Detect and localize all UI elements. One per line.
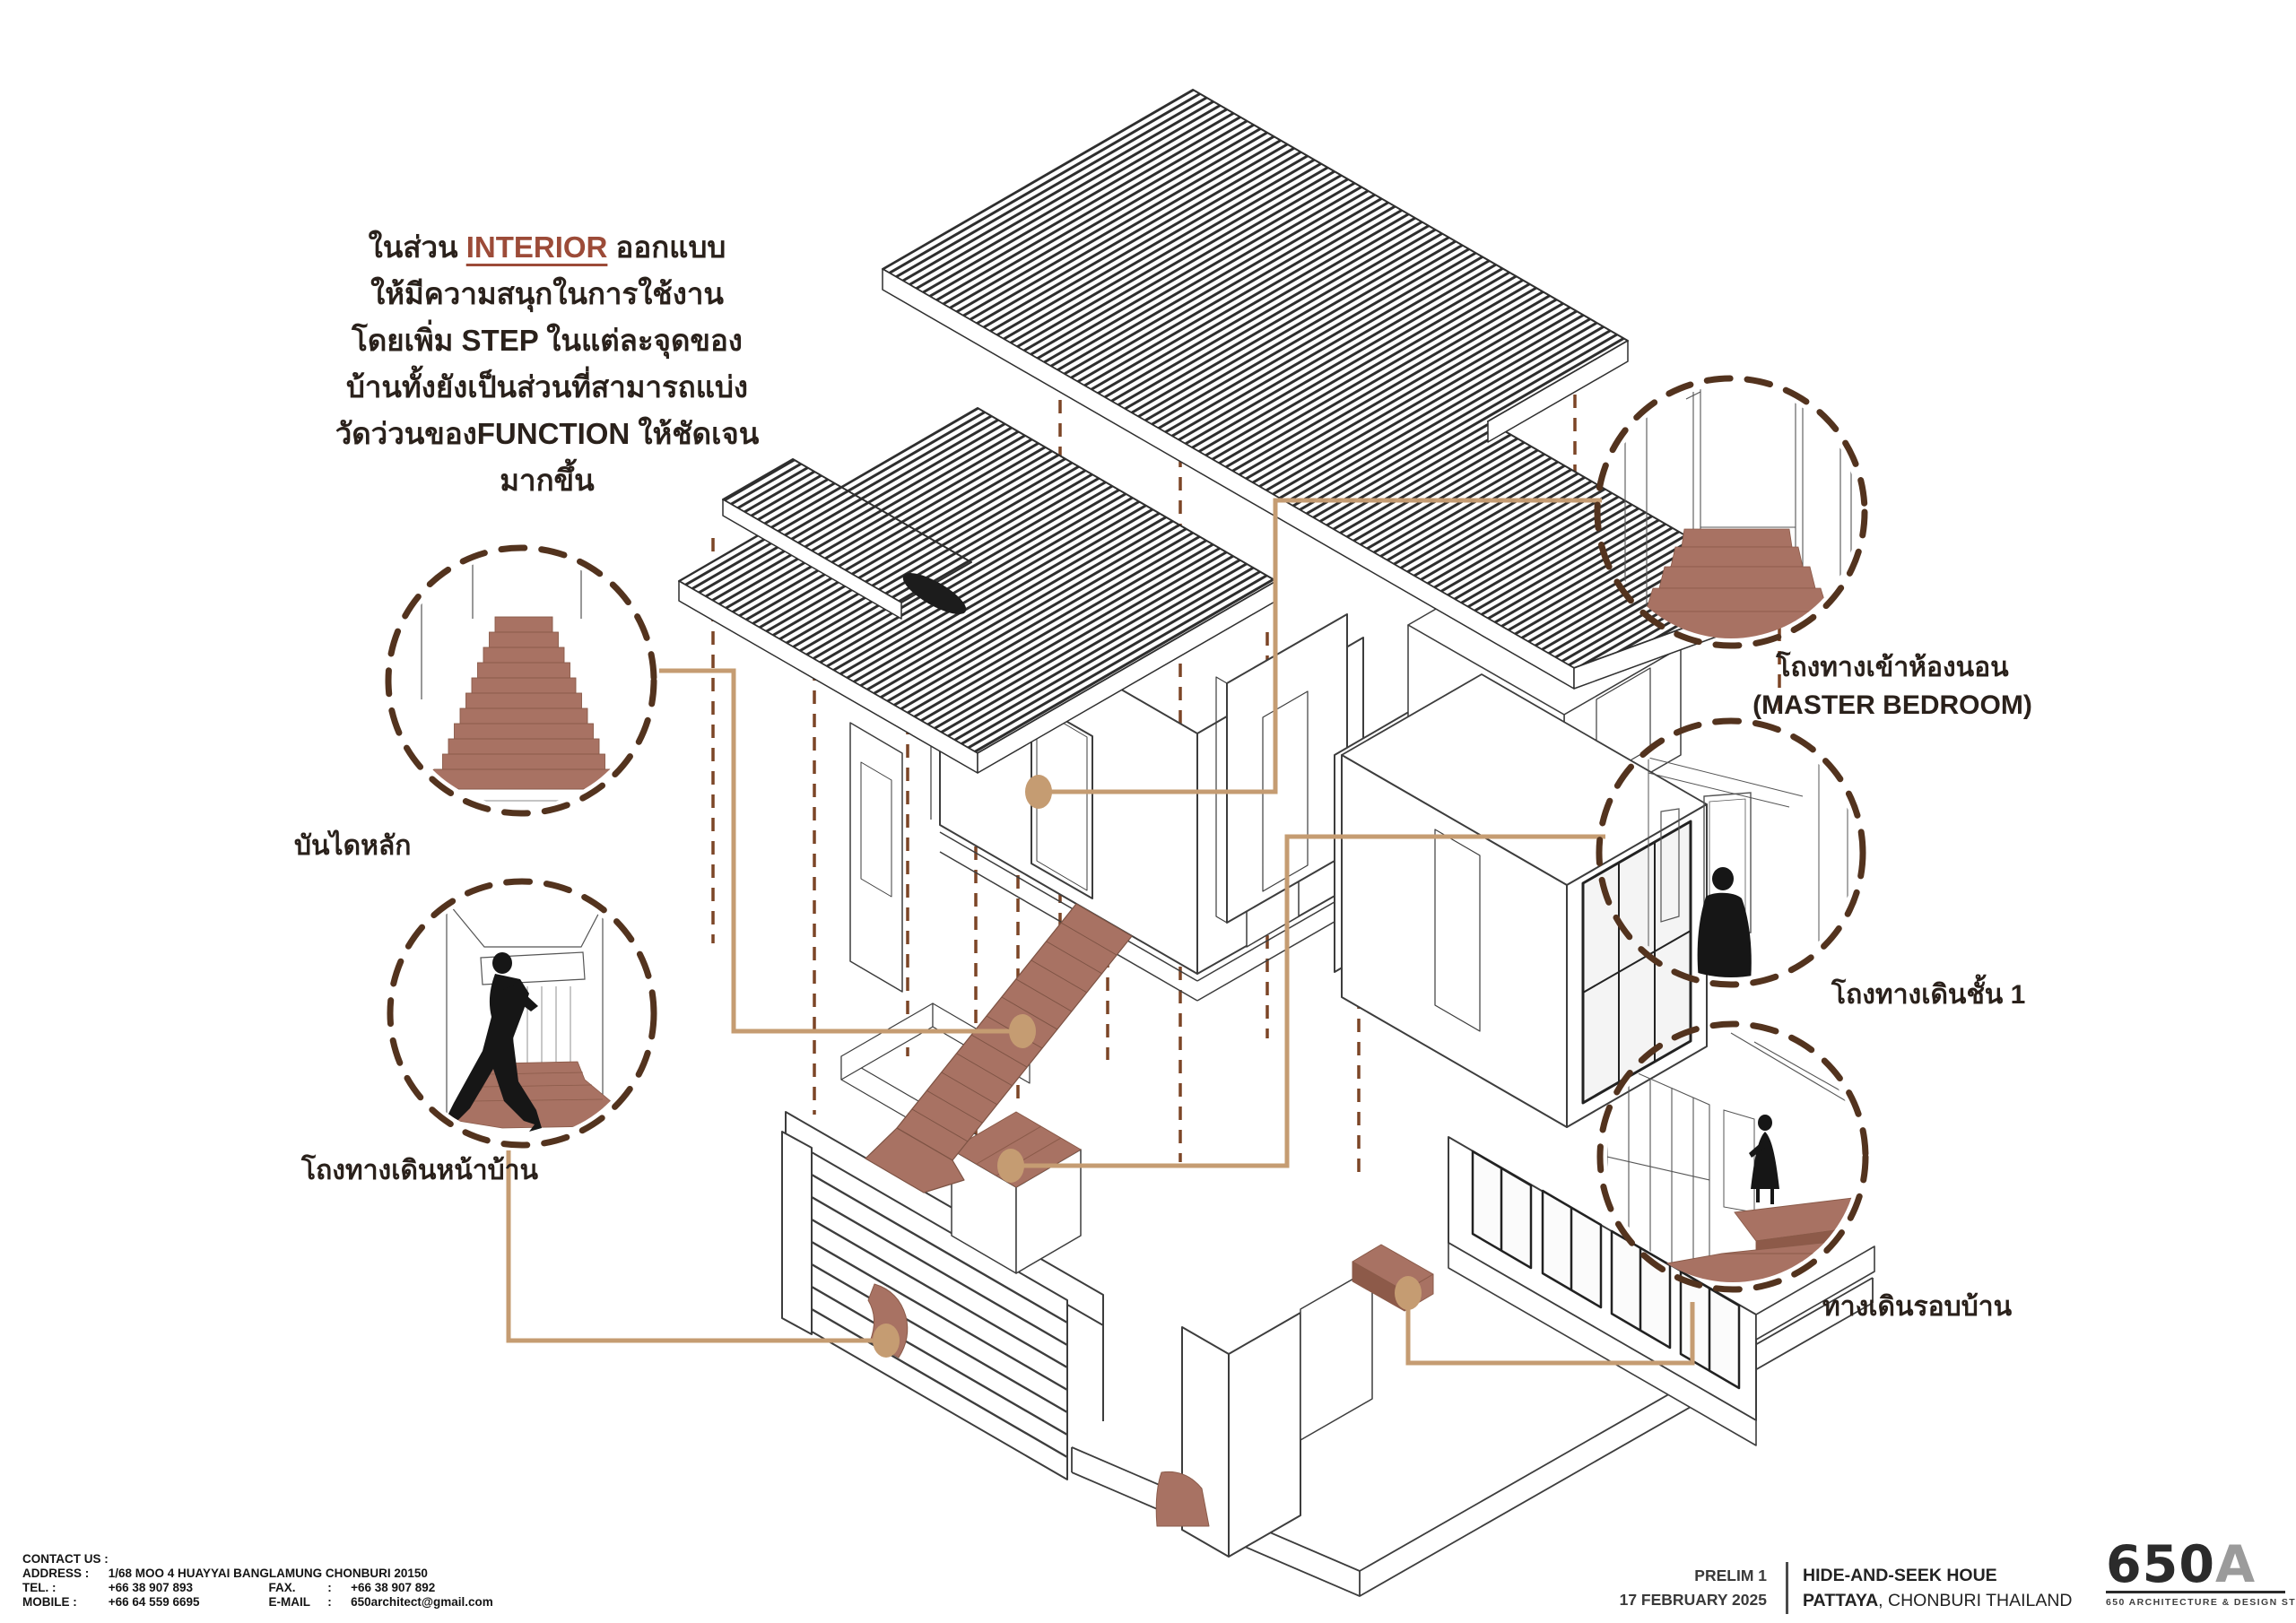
contact-tel-row: TEL. : +66 38 907 893 FAX. : +66 38 907 … [22,1581,493,1595]
label-master-bedroom-line2: (MASTER BEDROOM) [1740,687,2045,725]
callout-dot-front-hallway [873,1324,900,1358]
description-line-2: ให้มีความสนุกในการใช้งาน [287,271,807,317]
design-description: ในส่วน INTERIOR ออกแบบ ให้มีความสนุกในกา… [287,224,807,504]
project-city: PATTAYA [1803,1591,1878,1610]
tel-value: +66 38 907 893 [109,1581,265,1595]
address-value: 1/68 MOO 4 HUAYYAI BANGLAMUNG CHONBURI 2… [109,1567,428,1581]
label-front-hallway: โถงทางเดินหน้าบ้าน [301,1150,538,1192]
label-main-stair: บันไดหลัก [294,825,411,867]
mobile-value: +66 64 559 6695 [109,1595,265,1610]
description-line-4: บ้านทั้งยังเป็นส่วนที่สามารถแบ่ง [287,364,807,411]
stair-steps [405,617,642,789]
tel-label: TEL. : [22,1581,105,1595]
studio-logo: 650A 650 ARCHITECTURE & DESIGN STUDIO [2106,1539,2291,1608]
project-location: PATTAYA, CHONBURI THAILAND [1803,1588,2073,1613]
description-line-1: ในส่วน INTERIOR ออกแบบ [287,224,807,271]
titleblock-phase-column: PRELIM 1 17 FEBRUARY 2025 [1552,1564,1767,1612]
callout-dot-first-floor-hallway [997,1149,1024,1183]
presentation-board: ในส่วน INTERIOR ออกแบบ ให้มีความสนุกในกา… [0,0,2296,1623]
date-label: 17 FEBRUARY 2025 [1552,1588,1767,1612]
floating-wall-panel [850,723,902,992]
phase-label: PRELIM 1 [1552,1564,1767,1588]
email-separator: : [327,1595,347,1610]
titleblock-divider [1786,1562,1788,1614]
description-line-6: มากขึ้น [287,457,807,504]
fax-value: +66 38 907 892 [351,1581,435,1595]
callout-dot-main-stair [1009,1014,1036,1048]
address-label: ADDRESS : [22,1567,105,1581]
project-name: HIDE-AND-SEEK HOUE [1803,1563,2073,1588]
logo-mark-650: 650 [2106,1535,2215,1594]
label-master-bedroom-line1: โถงทางเข้าห้องนอน [1740,649,2045,687]
callout-circle-main-stair [388,548,654,813]
contact-block: CONTACT US : ADDRESS : 1/68 MOO 4 HUAYYA… [22,1552,493,1610]
fax-separator: : [327,1581,347,1595]
description-line-5: วัดว่วนของFUNCTION ให้ชัดเจน [287,411,807,457]
description-line-3: โดยเพิ่ม STEP ในแต่ละจุดของ [287,317,807,364]
fax-label: FAX. [269,1581,325,1595]
contact-address-row: ADDRESS : 1/68 MOO 4 HUAYYAI BANGLAMUNG … [22,1567,493,1581]
logo-mark: 650A [2106,1539,2291,1591]
logo-tagline: 650 ARCHITECTURE & DESIGN STUDIO [2106,1597,2291,1608]
callout-dot-walkway [1395,1276,1422,1310]
label-walkway-around-house: ทางเดินรอบบ้าน [1822,1286,2012,1328]
mobile-label: MOBILE : [22,1595,105,1610]
interior-highlight: INTERIOR [466,230,608,264]
dress-person-icon [1749,1115,1779,1204]
roof [679,90,1783,773]
callout-dot-master-bedroom [1025,775,1052,809]
contact-mobile-row: MOBILE : +66 64 559 6695 E-MAIL : 650arc… [22,1595,493,1610]
label-master-bedroom-entry: โถงทางเข้าห้องนอน (MASTER BEDROOM) [1740,649,2045,725]
email-value: 650architect@gmail.com [351,1595,493,1610]
email-label: E-MAIL [269,1595,325,1610]
callout-circle-front-hallway [390,881,654,1145]
label-first-floor-hallway: โถงทางเดินชั้น 1 [1831,974,2025,1016]
logo-mark-a: A [2215,1535,2256,1594]
contact-heading: CONTACT US : [22,1552,493,1567]
titleblock-project-column: HIDE-AND-SEEK HOUE PATTAYA, CHONBURI THA… [1803,1563,2073,1613]
project-region: , CHONBURI THAILAND [1878,1591,2072,1610]
